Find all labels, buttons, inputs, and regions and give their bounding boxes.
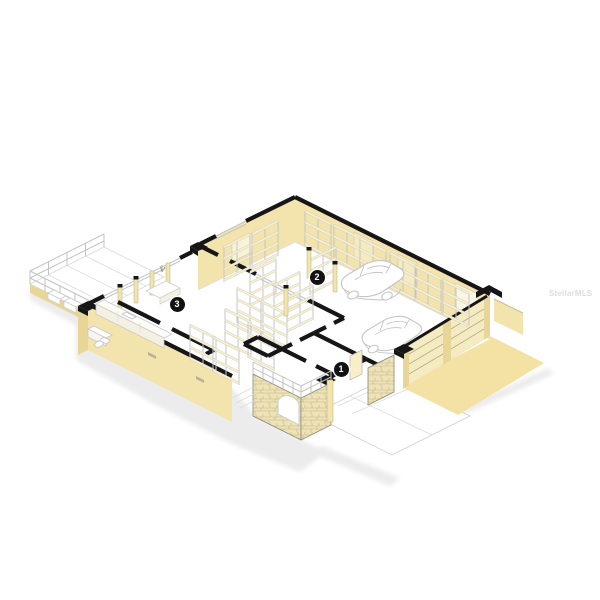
isometric-plan-svg (0, 0, 600, 600)
marker-2: 2 (310, 270, 325, 285)
porch-column (327, 380, 333, 422)
marker-3: 3 (170, 297, 185, 312)
watermark: StellarMLS (549, 289, 597, 298)
marker-1-label: 1 (338, 364, 343, 374)
marker-2-label: 2 (314, 272, 319, 282)
marker-1: 1 (334, 362, 349, 377)
marker-3-label: 3 (174, 299, 179, 309)
garden-wing-wall (494, 299, 523, 335)
floor-plan-image: 1 2 3 StellarMLS (0, 0, 600, 600)
